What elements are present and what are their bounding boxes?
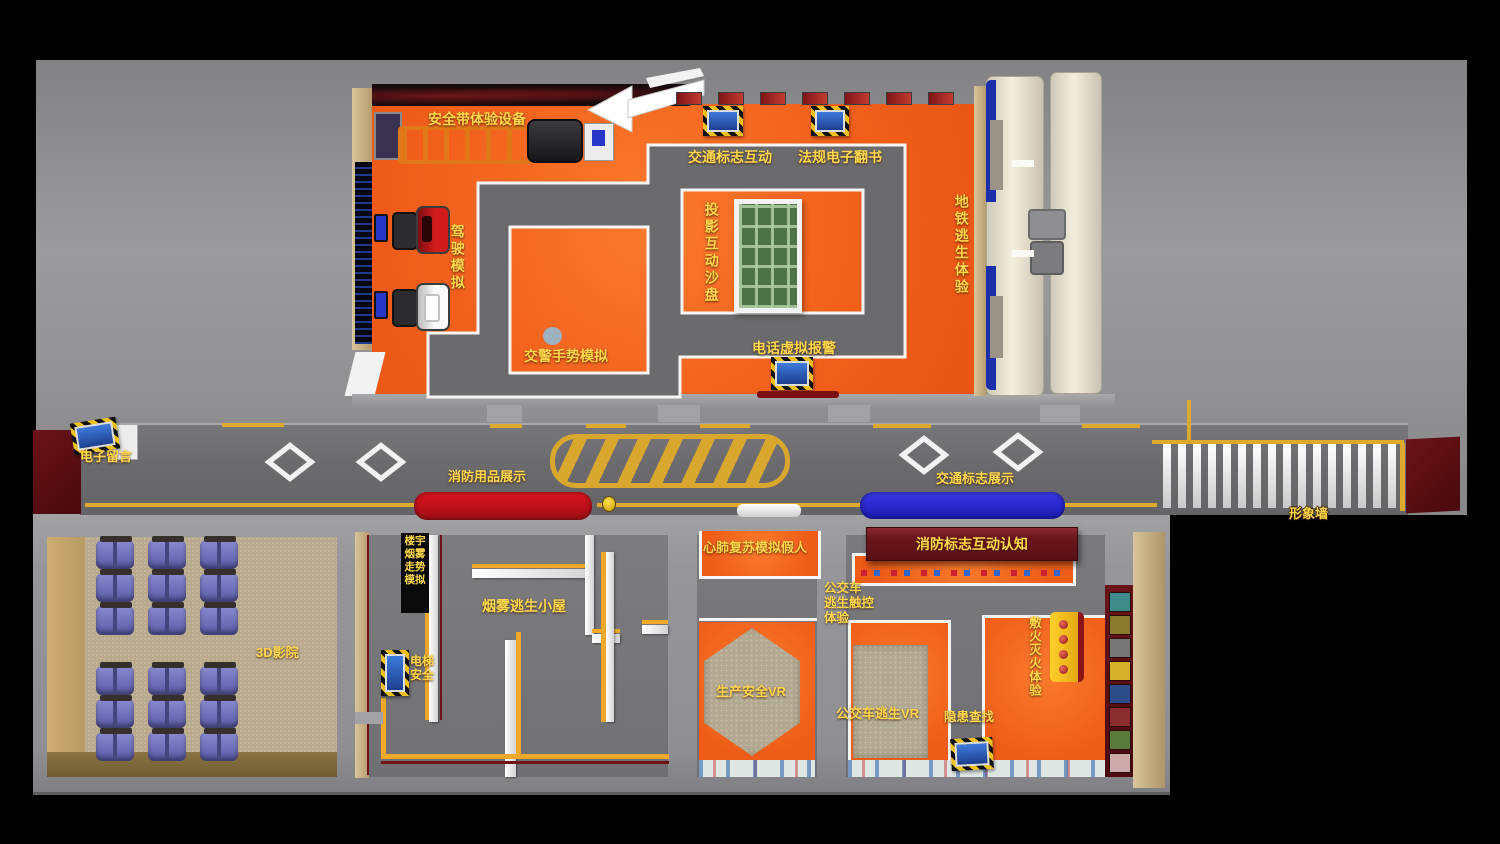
fire-truck-exhibit [414,492,592,520]
poster-thumb [1109,753,1131,773]
seatbelt-sled [527,119,583,163]
cinema-seat [148,699,186,728]
label-fire-goods: 消防用品展示 [448,469,526,485]
label-image-wall: 形象墙 [1289,506,1328,522]
label-production-vr: 生产安全VR [716,684,786,700]
ebook-kiosk [811,106,849,136]
lane-line [1082,424,1140,428]
zebra-bar [1283,444,1291,508]
maze-wall [429,535,438,722]
vr-room-mural [699,760,815,777]
elevator-kiosk [381,650,409,696]
cinema-seat [148,732,186,761]
train-door-mark-1 [1012,160,1034,167]
label-cinema: 3D影院 [256,645,299,661]
exhibition-floorplan: 楼宇 烟雾 走势 模拟 消防标志互动认知 安全带体验设备 交通标志互动 法规电子… [0,0,1500,844]
wall-stub [658,405,700,422]
cinema-seat [148,666,186,695]
shelf-items [861,570,1061,576]
zebra-bar [1223,444,1231,508]
striped-zone [550,434,790,488]
extinguisher-dot [1059,620,1068,629]
gesture-dot [543,327,562,345]
zebra-bar [1193,444,1201,508]
label-ebook: 法规电子翻书 [798,149,882,166]
zebra-bar [1298,444,1306,508]
cinema-seat [96,540,134,569]
phone-alarm-kiosk [771,357,813,390]
maze-wall [642,625,668,634]
car-poster [676,92,702,105]
poster-thumb [1109,638,1131,658]
sim-car-roof [424,294,440,322]
lane-line [597,503,862,507]
sim-car-window [422,216,432,242]
label-message: 电子留言 [80,449,132,465]
label-hazard: 隐患查找 [944,710,994,725]
lane-line [700,424,750,428]
extinguisher-dot [1059,650,1068,659]
lane-line [586,424,626,428]
bench [737,504,801,517]
label-bus-vr: 公交车逃生VR [836,706,919,722]
train-window-2 [990,296,1003,358]
fire-sign-banner: 消防标志互动认知 [866,527,1078,561]
lane-line [1065,503,1157,507]
zebra-bar [1253,444,1261,508]
label-traffic-show: 交通标志展示 [936,471,1014,487]
label-phone: 电话虚拟报警 [752,340,836,357]
maze-wall [585,535,594,635]
label-sandbox: 投影互动沙盘 [703,202,720,304]
seatbelt-track [398,126,532,164]
poster-thumb [1109,707,1131,727]
zebra-bar [1343,444,1351,508]
maze-wall-yellow [516,632,521,754]
sim-screen-1 [374,214,388,242]
zebra-bar [1328,444,1336,508]
label-seatbelt: 安全带体验设备 [428,111,526,128]
vr-room-divider [699,618,817,621]
traffic-sign-kiosk [703,106,743,136]
zebra-bar [1178,444,1186,508]
maze-wall-yellow [381,698,386,758]
bus-exhibit [860,492,1065,519]
zebra-bar [1208,444,1216,508]
label-driving: 驾驶模拟 [449,224,466,314]
cinema-seat [200,666,238,695]
wall-stub [1040,405,1080,422]
maze-wall-yellow [472,564,592,568]
zebra-bar [1268,444,1276,508]
label-elevator: 电梯 安全 [410,654,434,683]
cinema-seat [148,606,186,635]
cinema-seat [200,573,238,602]
label-subway: 地铁逃生体验 [953,194,970,298]
car-poster [760,92,786,105]
cinema-seat [96,732,134,761]
cinema-seat [96,666,134,695]
maze-red-line [381,761,669,764]
extinguish-zone [982,615,1111,766]
maze-stub [355,712,383,724]
poster-thumb [1109,661,1131,681]
lane-line [222,423,284,427]
sim-seat-1 [392,212,418,250]
car-poster [802,92,828,105]
maze-wall [606,552,614,722]
poster-thumb [1109,730,1131,750]
poster-thumb [1109,592,1131,612]
console-screen [592,130,605,146]
extinguisher-dot [1059,635,1068,644]
image-wall-panel [1406,437,1460,514]
subway-platform [974,86,986,396]
label-extinguish: 敷火灭火体验 [1026,616,1041,716]
wall-stub [828,405,870,422]
train-connector-1 [1028,209,1066,240]
maze-wall [472,569,592,578]
cinema-seat [200,606,238,635]
hazard-kiosk [950,737,994,771]
led-banner [355,162,372,344]
sim-car-white [416,283,450,331]
sandbox-table [734,199,802,313]
wall-stub [487,405,522,422]
poster-thumb [1109,684,1131,704]
train-door-mark-2 [1012,250,1034,257]
extinguisher-dot [1059,665,1068,674]
zebra-border [1152,440,1404,444]
label-smoke-house: 烟雾逃生小屋 [482,598,566,615]
zebra-bar [1238,444,1246,508]
zebra-bar [1373,444,1381,508]
label-bus-touch: 公交车 逃生触控 体验 [824,581,874,626]
car-poster [718,92,744,105]
zebra-bar [1388,444,1396,508]
lane-line [490,424,522,428]
seatbelt-console [584,123,614,161]
smoke-trend-banner: 楼宇 烟雾 走势 模拟 [401,533,429,613]
cinema-seat [200,699,238,728]
sim-car-red [416,206,450,254]
maze-wall-yellow [381,754,669,759]
lane-line [873,424,931,428]
cinema-seat [96,699,134,728]
bus-room-right-wall [1133,532,1165,788]
label-gesture: 交警手势模拟 [524,348,608,365]
car-poster [928,92,954,105]
zebra-bar [1358,444,1366,508]
train-connector-2 [1030,241,1064,275]
cinema-seat [96,606,134,635]
cinema-seat [96,573,134,602]
maze-red-line [367,535,369,775]
lane-line [85,503,415,507]
maze-red-line [440,535,442,720]
duck-figure [602,496,616,512]
top-wall-banner [372,84,690,106]
maze-wall-yellow [642,620,668,624]
zebra-border [1187,400,1191,443]
label-cpr: 心肺复苏模拟假人 [703,540,807,556]
zebra-bar [1313,444,1321,508]
cinema-left-band [47,537,85,777]
car-poster [886,92,912,105]
sim-seat-2 [392,289,418,327]
cinema-seat [200,540,238,569]
phone-alarm-table [757,391,839,398]
traffic-hall-bottom-wall [352,394,1115,410]
train-window-1 [990,120,1003,190]
cinema-seat [200,732,238,761]
label-traffic-sign: 交通标志互动 [688,149,772,166]
sim-screen-2 [374,291,388,319]
zebra-bar [1163,444,1171,508]
cinema-seat [148,540,186,569]
car-poster [844,92,870,105]
zebra-border [1400,443,1405,511]
cinema-seat [148,573,186,602]
poster-thumb [1109,615,1131,635]
fire-sign-label: 消防标志互动认知 [916,536,1028,553]
cinema-bottom-band [47,752,337,777]
bus-vr-platform [853,645,928,758]
